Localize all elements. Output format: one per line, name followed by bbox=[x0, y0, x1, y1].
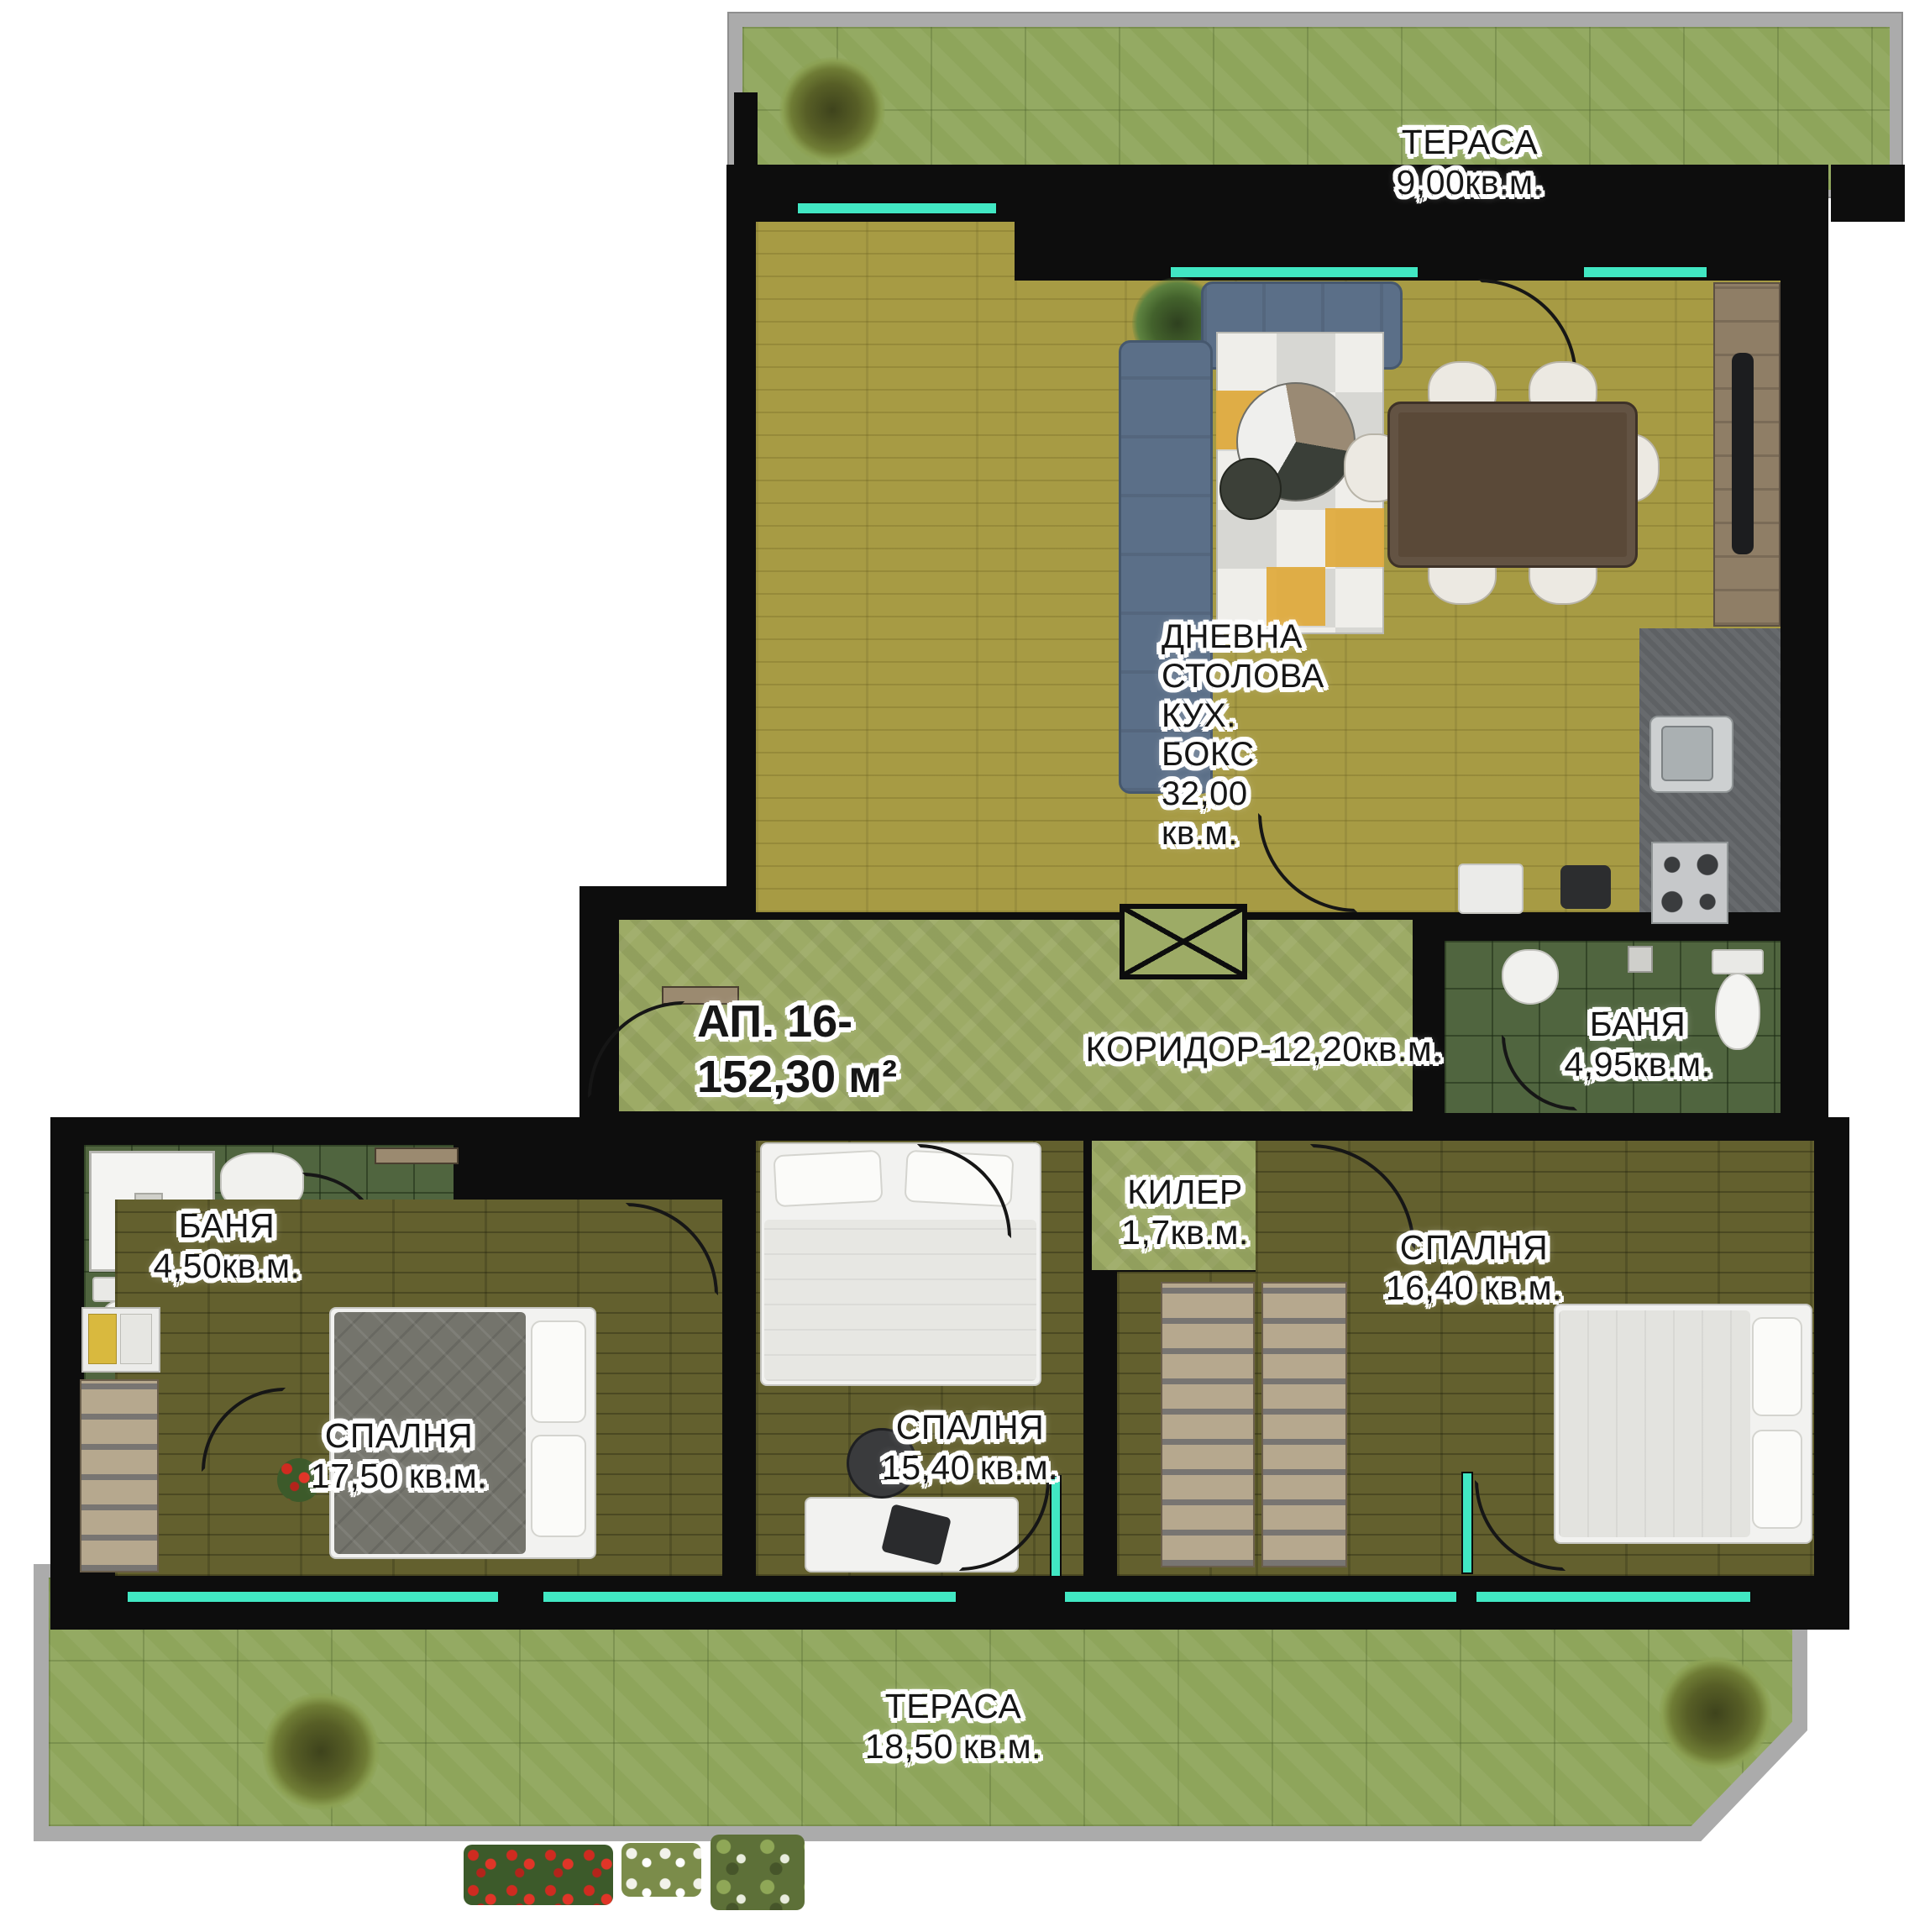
pillow bbox=[1752, 1317, 1802, 1416]
planter-red-flowers bbox=[464, 1845, 613, 1905]
pillow bbox=[531, 1435, 586, 1537]
wall-terrace-divider bbox=[734, 92, 758, 193]
pillow bbox=[1752, 1430, 1802, 1529]
living-line: БОКС bbox=[1162, 735, 1397, 774]
shaft-box bbox=[1120, 904, 1247, 979]
bath-right-shelf bbox=[1628, 946, 1653, 973]
cabinet-drawer bbox=[120, 1314, 152, 1364]
storage-area: 1,7кв.м. bbox=[1063, 1213, 1307, 1253]
window-bottom-center-right bbox=[1063, 1590, 1458, 1604]
side-table bbox=[1219, 458, 1282, 520]
window-bottom-center-left bbox=[542, 1590, 957, 1604]
label-apartment: АП. 16- 152,30 м² bbox=[697, 995, 1058, 1105]
bath-right-name: БАНЯ bbox=[1512, 1005, 1764, 1045]
wardrobe-hangers-bedroom-left bbox=[80, 1379, 159, 1572]
terrace-door-frame-right bbox=[1461, 1472, 1473, 1574]
planter-white-flowers bbox=[621, 1843, 701, 1897]
wardrobe-hangers-right bbox=[1261, 1282, 1347, 1567]
label-terrace-top: ТЕРАСА 9,00кв.м. bbox=[1344, 123, 1596, 203]
floor-plan: ТЕРАСА 9,00кв.м. ДНЕВНА СТОЛОВА КУХ. БОК… bbox=[0, 0, 1909, 1932]
living-room-floor-left bbox=[756, 222, 1015, 912]
terrace-bottom-bush-left bbox=[262, 1693, 380, 1810]
window-living-right bbox=[1582, 265, 1708, 279]
label-corridor: КОРИДОР-12,20кв.м. bbox=[1058, 1028, 1470, 1069]
bath-left-name: БАНЯ bbox=[113, 1206, 340, 1247]
living-line: СТОЛОВА bbox=[1162, 657, 1397, 696]
label-bedroom-middle: СПАЛНЯ 15,40 кв.м. bbox=[857, 1408, 1083, 1488]
bed-middle-duvet bbox=[764, 1220, 1036, 1381]
dining-table bbox=[1387, 402, 1638, 568]
label-bedroom-right: СПАЛНЯ 16,40 кв.м. bbox=[1361, 1228, 1587, 1309]
terrace-bottom-bush-right bbox=[1659, 1656, 1772, 1770]
wardrobe-hangers-left bbox=[1161, 1282, 1255, 1567]
apartment-number: АП. 16- bbox=[697, 995, 1058, 1050]
cabinet-drawer bbox=[88, 1314, 117, 1364]
label-terrace-bottom: ТЕРАСА 18,50 кв.м. bbox=[827, 1687, 1079, 1767]
label-bath-right: БАНЯ 4,95кв.м. bbox=[1512, 1005, 1764, 1085]
bedroom-middle-area: 15,40 кв.м. bbox=[857, 1448, 1083, 1488]
label-bedroom-left: СПАЛНЯ 17,50 кв.м. bbox=[286, 1416, 512, 1497]
pillow bbox=[773, 1150, 883, 1208]
bath-left-area: 4,50кв.м. bbox=[113, 1247, 340, 1287]
tv bbox=[1732, 353, 1754, 554]
bedroom-left-name: СПАЛНЯ bbox=[286, 1416, 512, 1457]
kitchen-appliance bbox=[1458, 864, 1524, 914]
wall-top-right-corner bbox=[1831, 165, 1905, 222]
bedroom-right-area: 16,40 кв.м. bbox=[1361, 1268, 1587, 1309]
bed-right-duvet bbox=[1559, 1310, 1750, 1537]
label-bath-left: БАНЯ 4,50кв.м. bbox=[113, 1206, 340, 1287]
bath-right-area: 4,95кв.м. bbox=[1512, 1045, 1764, 1085]
living-line: КУХ. bbox=[1162, 696, 1397, 736]
terrace-top-area: 9,00кв.м. bbox=[1344, 163, 1596, 203]
living-line: кв.м. bbox=[1162, 814, 1397, 853]
label-living: ДНЕВНА СТОЛОВА КУХ. БОКС 32,00 кв.м. bbox=[1162, 617, 1397, 853]
bedroom-middle-name: СПАЛНЯ bbox=[857, 1408, 1083, 1448]
window-bottom-right bbox=[1475, 1590, 1752, 1604]
terrace-bottom-name: ТЕРАСА bbox=[827, 1687, 1079, 1727]
bedroom-right-name: СПАЛНЯ bbox=[1361, 1228, 1587, 1268]
toilet-tank bbox=[1712, 949, 1764, 974]
kitchen-sink-basin bbox=[1661, 726, 1713, 781]
living-line: ДНЕВНА bbox=[1162, 617, 1397, 657]
coffee-machine bbox=[1560, 865, 1611, 909]
terrace-top-bush bbox=[779, 57, 885, 163]
bedroom-left-area: 17,50 кв.м. bbox=[286, 1457, 512, 1497]
bath-right-sink bbox=[1502, 949, 1559, 1005]
planter-green-plants bbox=[711, 1835, 805, 1910]
window-living-center bbox=[1169, 265, 1419, 279]
living-line: 32,00 bbox=[1162, 774, 1397, 814]
pillow bbox=[531, 1320, 586, 1423]
label-storage: КИЛЕР 1,7кв.м. bbox=[1063, 1173, 1307, 1253]
apartment-area: 152,30 м² bbox=[697, 1050, 1058, 1105]
terrace-bottom-area: 18,50 кв.м. bbox=[827, 1727, 1079, 1767]
corridor-text: КОРИДОР-12,20кв.м. bbox=[1058, 1028, 1470, 1069]
window-living-left bbox=[796, 202, 998, 215]
storage-name: КИЛЕР bbox=[1063, 1173, 1307, 1213]
bath-left-door-leaf bbox=[375, 1147, 459, 1164]
terrace-top-name: ТЕРАСА bbox=[1344, 123, 1596, 163]
terrace-door-frame-middle bbox=[1050, 1475, 1062, 1578]
stove bbox=[1651, 842, 1728, 924]
rug-accent-square bbox=[1325, 508, 1384, 567]
window-bottom-left bbox=[126, 1590, 500, 1604]
